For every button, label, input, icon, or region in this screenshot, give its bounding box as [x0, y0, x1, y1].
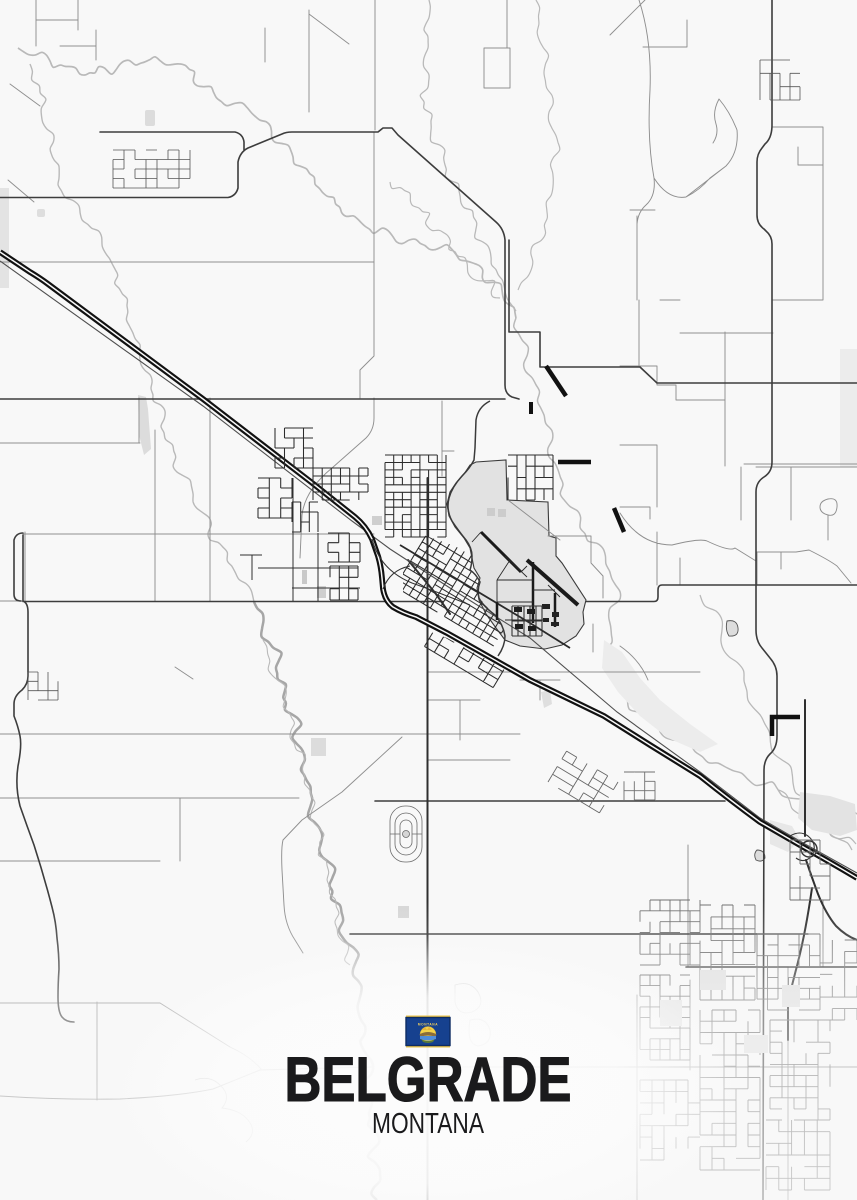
svg-text:MONTANA: MONTANA [372, 1108, 485, 1140]
svg-text:BELGRADE: BELGRADE [285, 1045, 572, 1115]
svg-text:MONTANA: MONTANA [418, 1023, 438, 1027]
